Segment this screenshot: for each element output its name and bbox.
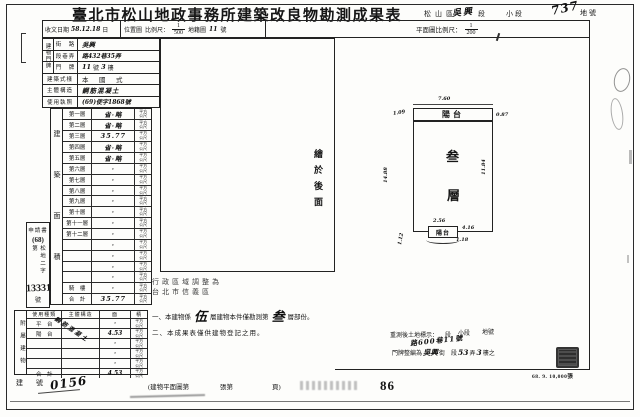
unit-bottom: 公尺 bbox=[139, 288, 147, 293]
floor-area-unit: 平方公尺 bbox=[135, 196, 151, 206]
col-structure-header: 主體構造 bbox=[62, 311, 99, 318]
plan-dim-small-balcony-top: 2.56 bbox=[433, 218, 445, 224]
floor-name bbox=[63, 251, 92, 261]
floor-row: 第四層 省·略 平方公尺 bbox=[63, 142, 151, 153]
floor-area-unit: 平方公尺 bbox=[135, 153, 151, 163]
scale-denominator: 500 bbox=[172, 29, 185, 36]
appurtenant-area-unit: 平方公尺 bbox=[131, 369, 147, 378]
appurtenant-area-value: 4.53 bbox=[100, 329, 131, 338]
appurtenant-row: · 平方公尺 bbox=[27, 349, 147, 359]
door-street-suffix: 街 bbox=[439, 348, 445, 357]
illegible-stamp-smudge bbox=[300, 381, 358, 390]
margin-bracket-mark bbox=[21, 33, 26, 63]
lane-value: 路432巷35弄 bbox=[78, 51, 159, 62]
appurtenant-vertical-label: 附屬建物 bbox=[15, 311, 27, 374]
page-number: 86 bbox=[380, 378, 395, 394]
floor-area-value: · bbox=[92, 240, 135, 250]
door-no-handwritten: 11 bbox=[82, 63, 91, 71]
col-area-header-1: 面 bbox=[100, 311, 131, 318]
floor-area-value: · bbox=[92, 272, 135, 282]
floor-area-value: 35.77 bbox=[92, 131, 135, 141]
door-lane-handwritten: 53 bbox=[458, 348, 468, 357]
appurtenant-area-unit: 平方公尺 bbox=[131, 339, 147, 348]
door-floor-handwritten: 3 bbox=[477, 348, 482, 357]
unit-bottom: 公尺 bbox=[139, 267, 147, 272]
floor-area-value: · bbox=[92, 283, 135, 293]
print-run-code: 68. 9. 10,000張 bbox=[532, 372, 573, 380]
scanned-survey-form: { "page": { "title": "臺北市松山地政事務所建築改良物勘測成… bbox=[0, 0, 640, 417]
plan-dim-small-balcony-right: 4.16 bbox=[462, 225, 474, 231]
appurtenant-area-value: 4.53 bbox=[100, 369, 131, 378]
appurtenant-header-row: 使用種類 主體構造 面 積 bbox=[27, 311, 147, 319]
lane-label: 段巷弄 bbox=[54, 51, 78, 62]
floor-row: · 平方公尺 bbox=[63, 262, 151, 273]
note1-floors-handwritten: 伍 bbox=[194, 306, 207, 325]
application-label: 申請書 bbox=[28, 226, 48, 234]
note1-mid: 層建物本件僅勘測第 bbox=[210, 311, 269, 321]
floor-name: 騎 樓 bbox=[63, 283, 92, 293]
floor-area-unit: 平方公尺 bbox=[135, 131, 151, 141]
floor-area-unit: 平方公尺 bbox=[135, 262, 151, 272]
form-bottom-rule bbox=[10, 401, 630, 402]
license-label: 使用執照 bbox=[43, 97, 78, 108]
door-number-row: 門 牌 11號3樓 bbox=[43, 62, 159, 74]
floor-name: 第七層 bbox=[63, 175, 92, 185]
form-header-band: 收文日期 58.12.18 日 位置圖 比例尺： 1 500 地籍圖 11 號 … bbox=[42, 20, 590, 38]
floor-name: 第五層 bbox=[63, 153, 92, 163]
floor-name: 第三層 bbox=[63, 131, 92, 141]
scan-artifact bbox=[629, 150, 632, 164]
plan-scale-denominator: 200 bbox=[465, 29, 478, 36]
style-label: 建築式樣 bbox=[43, 74, 78, 85]
receipt-date-value: 58.12.18 bbox=[71, 26, 100, 33]
floor-area-value: 省·略 bbox=[92, 142, 135, 152]
plan-floor-char-1: 叁 bbox=[446, 146, 459, 165]
floor-area-unit: 平方公尺 bbox=[135, 251, 151, 261]
plan-sheet-ref-3: 頁) bbox=[272, 381, 281, 391]
unit-bottom: 公尺 bbox=[139, 169, 147, 174]
building-info-table: 街 路 吳興 段巷弄 路432巷35弄 門 牌 11號3樓 建築式樣 本 國 式… bbox=[42, 38, 160, 108]
floor-area-value: · bbox=[92, 164, 135, 174]
door-no-suffix: 號 bbox=[93, 63, 99, 72]
unit-bottom: 公尺 bbox=[139, 223, 147, 228]
plan-balcony-curve bbox=[426, 236, 460, 244]
door-label: 門 牌 bbox=[54, 62, 78, 73]
resurvey-lot-label: 地號 bbox=[482, 327, 494, 336]
location-map-box: 繪於後面 bbox=[160, 38, 335, 272]
floor-row: 第十二層 · 平方公尺 bbox=[63, 229, 151, 240]
door-renumber-label: 門牌整編為 bbox=[392, 348, 422, 357]
style-value: 本 國 式 bbox=[78, 74, 159, 85]
floor-name bbox=[63, 272, 92, 282]
location-map-label: 位置圖 bbox=[124, 25, 142, 34]
floor-area-value: · bbox=[92, 218, 135, 228]
unit-bottom: 公尺 bbox=[139, 158, 147, 163]
building-number-line: 建 號 0156 bbox=[16, 376, 87, 390]
floor-area-unit: 平方公尺 bbox=[135, 283, 151, 293]
floor-area-value: · bbox=[92, 207, 135, 217]
door-floor-handwritten: 3 bbox=[101, 63, 106, 71]
door-floor-suffix: 樓之 bbox=[483, 348, 495, 357]
plan-dim-top: 7.60 bbox=[438, 96, 450, 102]
unit-bottom: 公尺 bbox=[135, 374, 143, 379]
floor-row: · 平方公尺 bbox=[63, 240, 151, 251]
admin-rezoning-stamp: 行政區域調整為 台北市信義區 bbox=[152, 277, 222, 297]
floor-area-value: 省·略 bbox=[92, 120, 135, 130]
application-year: (68) bbox=[32, 236, 44, 244]
door-value: 11號3樓 bbox=[78, 62, 159, 73]
note1-pre: 一、本建物係 bbox=[152, 311, 191, 321]
address-vertical-label: 建物門牌 bbox=[42, 38, 53, 73]
appurtenant-type bbox=[27, 339, 62, 348]
floor-area-unit: 平方公尺 bbox=[135, 186, 151, 196]
floor-row: 第三層 35.77 平方公尺 bbox=[63, 131, 151, 142]
scale-label: 比例尺： bbox=[145, 25, 169, 34]
floor-area-unit: 平方公尺 bbox=[135, 294, 151, 304]
unit-bottom: 公尺 bbox=[139, 201, 147, 206]
unit-bottom: 公尺 bbox=[139, 136, 147, 141]
receipt-date-label: 收文日期 bbox=[45, 25, 69, 34]
drawn-on-back-note: 繪於後面 bbox=[312, 149, 325, 213]
floor-row: 第二層 省·略 平方公尺 bbox=[63, 120, 151, 131]
admin-rezoning-line1: 行政區域調整為 bbox=[152, 277, 222, 287]
floor-row: 騎 樓 · 平方公尺 bbox=[63, 283, 151, 294]
appurtenant-area-unit: 平方公尺 bbox=[131, 329, 147, 338]
floor-area-value: 省·略 bbox=[92, 153, 135, 163]
floor-name: 第二層 bbox=[63, 120, 92, 130]
license-value: (69)使字1868號 bbox=[78, 97, 159, 108]
floor-area-rows: 第一層 省·略 平方公尺 第二層 省·略 平方公尺 第三層 35.77 平方公尺… bbox=[63, 109, 151, 304]
unit-bottom: 公尺 bbox=[139, 245, 147, 250]
unit-bottom: 公尺 bbox=[139, 212, 147, 217]
appurtenant-structure-cell bbox=[62, 359, 99, 368]
appurtenant-structure-cell bbox=[62, 349, 99, 358]
license-row: 使用執照 (69)使字1868號 bbox=[43, 97, 159, 108]
floor-area-unit: 平方公尺 bbox=[135, 272, 151, 282]
floor-name: 第八層 bbox=[63, 186, 92, 196]
floor-area-value: · bbox=[92, 251, 135, 261]
floor-row: 第一層 省·略 平方公尺 bbox=[63, 109, 151, 120]
application-number: 13331 bbox=[25, 282, 50, 294]
floor-row: 第十一層 · 平方公尺 bbox=[63, 218, 151, 229]
structure-row: 主體構造 鋼筋混凝土 bbox=[43, 85, 159, 97]
unit-bottom: 公尺 bbox=[139, 125, 147, 130]
application-number-box: 申請書 (68) 松地二字第 13331 號 bbox=[26, 222, 50, 308]
section-name-handwritten: 吳興 bbox=[451, 4, 474, 19]
street-value: 吳興 bbox=[78, 39, 159, 50]
appurtenant-area-value: · bbox=[100, 349, 131, 358]
floor-row: 第十層 · 平方公尺 bbox=[63, 207, 151, 218]
lot-number-handwritten: 737 bbox=[550, 0, 580, 18]
ink-smudge bbox=[130, 394, 205, 398]
section-suffix-label: 段 bbox=[478, 9, 485, 19]
door-lane-suffix: 弄 bbox=[469, 348, 475, 357]
application-number-suffix: 號 bbox=[35, 295, 41, 304]
seal-stamp-texture bbox=[558, 349, 577, 366]
note-2: 二、本成果表僅供建物登記之用。 bbox=[152, 327, 265, 337]
plan-scale-fraction: 1 200 bbox=[465, 23, 478, 36]
plan-dimension-line bbox=[413, 104, 493, 105]
lane-row: 段巷弄 路432巷35弄 bbox=[43, 51, 159, 63]
cadastral-suffix: 號 bbox=[220, 25, 226, 34]
floor-name: 第六層 bbox=[63, 164, 92, 174]
floor-name bbox=[63, 240, 92, 250]
floor-name: 第十二層 bbox=[63, 229, 92, 239]
floor-name: 第四層 bbox=[63, 142, 92, 152]
handwritten-circle-mark bbox=[612, 67, 633, 94]
location-scale-fraction: 1 500 bbox=[172, 23, 185, 36]
unit-bottom: 公尺 bbox=[139, 256, 147, 261]
appurtenant-area-unit: 平方公尺 bbox=[131, 349, 147, 358]
appurtenant-row: · 平方公尺 bbox=[27, 359, 147, 369]
floor-area-value: · bbox=[92, 262, 135, 272]
admin-rezoning-line2: 台北市信義區 bbox=[152, 287, 222, 297]
plan-main-outline bbox=[413, 121, 493, 232]
floor-area-unit: 平方公尺 bbox=[135, 218, 151, 228]
floor-row: · 平方公尺 bbox=[63, 251, 151, 262]
appurtenant-structures-table: 附屬建物 使用種類 主體構造 面 積 平 台 · 平方公尺 陽 台 4.53 平… bbox=[14, 310, 148, 375]
structure-label: 主體構造 bbox=[43, 85, 78, 96]
cadastral-map-label: 地籍圖 bbox=[188, 25, 206, 34]
application-prefix: 松地二字第 bbox=[30, 245, 46, 281]
cadastral-sheet-number: 11 bbox=[209, 26, 217, 33]
floor-area-value: · bbox=[92, 186, 135, 196]
floor-row: 第九層 · 平方公尺 bbox=[63, 196, 151, 207]
lot-suffix-label: 地號 bbox=[580, 8, 598, 18]
plan-balcony: 陽台 bbox=[413, 108, 493, 121]
door-segment-label: 段 bbox=[451, 348, 457, 357]
unit-bottom: 公尺 bbox=[139, 234, 147, 239]
small-section-label: 小段 bbox=[506, 9, 524, 19]
appurtenant-area-value: · bbox=[100, 319, 131, 328]
plan-floor-char-2: 層 bbox=[447, 185, 460, 204]
floor-row: 第七層 · 平方公尺 bbox=[63, 175, 151, 186]
floor-row: · 平方公尺 bbox=[63, 272, 151, 283]
unit-bottom: 公尺 bbox=[139, 191, 147, 196]
floor-area-value: 35.77 bbox=[92, 294, 135, 304]
floor-area-value: 省·略 bbox=[92, 109, 135, 119]
appurtenant-area-value: · bbox=[100, 359, 131, 368]
handwritten-circle-mark bbox=[609, 97, 625, 130]
appurtenant-type bbox=[27, 349, 62, 358]
floor-area-unit: 平方公尺 bbox=[135, 240, 151, 250]
floor-area-unit: 平方公尺 bbox=[135, 207, 151, 217]
unit-bottom: 公尺 bbox=[139, 180, 147, 185]
col-area-header-2: 積 bbox=[131, 311, 147, 318]
location-map-scale-cell: 位置圖 比例尺： 1 500 地籍圖 11 號 bbox=[121, 21, 266, 37]
unit-bottom: 公尺 bbox=[139, 114, 147, 119]
floor-area-value: · bbox=[92, 196, 135, 206]
floor-area-value: · bbox=[92, 229, 135, 239]
floor-row: 第五層 省·略 平方公尺 bbox=[63, 153, 151, 164]
floor-name: 第九層 bbox=[63, 196, 92, 206]
plan-scale-label: 平面圖比例尺： bbox=[416, 24, 462, 34]
floor-area-vertical-label: 建築面積 bbox=[51, 109, 63, 304]
plan-dim-small-balcony-bottom: 1.18 bbox=[456, 237, 468, 243]
plan-dim-top-right: 0.87 bbox=[496, 112, 508, 118]
plan-scale-cell: 平面圖比例尺： 1 200 bbox=[266, 21, 589, 37]
plan-dim-right: 11.84 bbox=[481, 159, 487, 175]
floor-area-value: · bbox=[92, 175, 135, 185]
building-number-label: 建 號 bbox=[16, 378, 46, 388]
street-row: 街 路 吳興 bbox=[43, 39, 159, 51]
floor-row: 第六層 · 平方公尺 bbox=[63, 164, 151, 175]
note1-post: 層部份。 bbox=[288, 311, 314, 321]
plan-sheet-ref-2: 張第 bbox=[220, 381, 233, 391]
note-1: 一、本建物係 伍 層建物本件僅勘測第 叁 層部份。 bbox=[152, 306, 314, 325]
floor-row: 第八層 · 平方公尺 bbox=[63, 186, 151, 197]
seal-stamp bbox=[556, 347, 579, 368]
floor-name bbox=[63, 262, 92, 272]
appurtenant-rows: 平 台 · 平方公尺 陽 台 4.53 平方公尺 · 平方公尺 · 平方公尺 bbox=[27, 319, 147, 378]
appurtenant-area-value: · bbox=[100, 339, 131, 348]
floor-area-unit: 平方公尺 bbox=[135, 142, 151, 152]
structure-value: 鋼筋混凝土 bbox=[78, 85, 159, 96]
plan-sheet-ref-1: (建物平面圖第 bbox=[148, 381, 189, 391]
floor-area-unit: 平方公尺 bbox=[135, 175, 151, 185]
floor-area-unit: 平方公尺 bbox=[135, 229, 151, 239]
unit-bottom: 公尺 bbox=[139, 147, 147, 152]
door-street-handwritten: 吳興 bbox=[423, 347, 438, 358]
floor-area-unit: 平方公尺 bbox=[135, 120, 151, 130]
appurtenant-area-unit: 平方公尺 bbox=[131, 359, 147, 368]
receipt-date-cell: 收文日期 58.12.18 日 bbox=[43, 21, 121, 37]
note1-surveyed-floor-handwritten: 叁 bbox=[272, 306, 285, 325]
floor-area-table: 建築面積 第一層 省·略 平方公尺 第二層 省·略 平方公尺 第三層 35.77… bbox=[50, 108, 152, 305]
style-row: 建築式樣 本 國 式 bbox=[43, 74, 159, 86]
resurvey-door-line: 門牌整編為 吳興 街 段 53 弄 3 樓之 bbox=[392, 347, 495, 358]
floor-area-unit: 平方公尺 bbox=[135, 164, 151, 174]
unit-bottom: 公尺 bbox=[139, 299, 147, 304]
floor-area-unit: 平方公尺 bbox=[135, 109, 151, 119]
unit-bottom: 公尺 bbox=[139, 277, 147, 282]
door-floor-suffix: 樓 bbox=[108, 63, 114, 72]
appurtenant-type: 陽 台 bbox=[27, 329, 62, 338]
floor-name: 第一層 bbox=[63, 109, 92, 119]
floor-name: 第十一層 bbox=[63, 218, 92, 228]
floor-row: 合 計 35.77 平方公尺 bbox=[63, 294, 151, 304]
floor-name: 第十層 bbox=[63, 207, 92, 217]
appurtenant-type bbox=[27, 359, 62, 368]
floor-name: 合 計 bbox=[63, 294, 92, 304]
plan-dim-left: 14.88 bbox=[383, 167, 389, 183]
appurtenant-area-unit: 平方公尺 bbox=[131, 319, 147, 328]
appurtenant-row: 平 台 · 平方公尺 bbox=[27, 319, 147, 329]
receipt-date-suffix: 日 bbox=[102, 25, 108, 34]
scan-artifact bbox=[627, 255, 629, 263]
street-label: 街 路 bbox=[54, 39, 78, 50]
